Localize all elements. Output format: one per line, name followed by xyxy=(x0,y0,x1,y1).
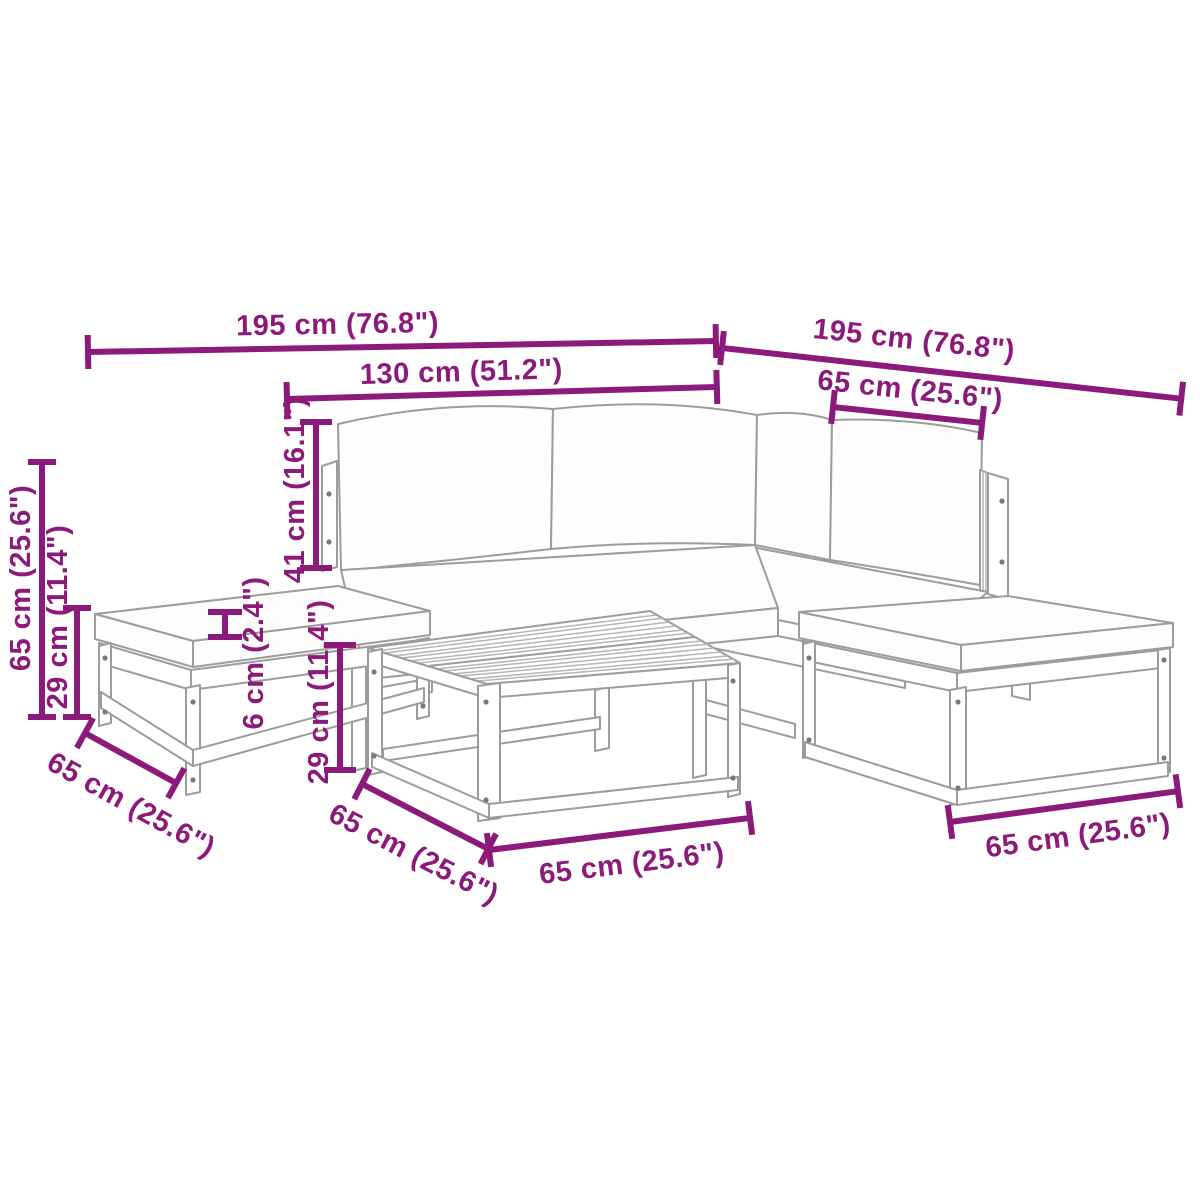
back-cushion-4 xyxy=(830,420,982,585)
dimension-diagram: 195 cm (76.8") 130 cm (51.2") 195 cm (76… xyxy=(0,0,1200,1200)
sofa-back-post xyxy=(322,461,337,571)
dimension-line xyxy=(88,341,716,352)
dimension-tick xyxy=(948,805,953,839)
dim-seat-height: 29 cm (11.4") xyxy=(42,525,91,717)
dim-table-width: 65 cm (25.6") xyxy=(487,801,756,897)
dimension-tick xyxy=(487,833,491,867)
dimension-label: 195 cm (76.8") xyxy=(236,307,439,343)
dimension-tick xyxy=(1179,382,1183,416)
dimension-label: 29 cm (11.4") xyxy=(42,525,74,710)
dimension-tick xyxy=(716,370,717,404)
dimension-tick xyxy=(1176,774,1181,808)
sofa-side-panel xyxy=(980,470,1008,600)
dimension-tick xyxy=(720,331,724,365)
right-footstool xyxy=(799,596,1173,805)
dimension-label: 130 cm (51.2") xyxy=(359,353,563,391)
dimension-label: 65 cm (25.6") xyxy=(323,798,503,912)
dimension-label: 6 cm (2.4") xyxy=(238,576,270,729)
dimension-label: 41 cm (16.1") xyxy=(279,397,311,583)
back-cushion-1 xyxy=(338,406,553,571)
dimension-line xyxy=(287,387,717,399)
back-cushion-2 xyxy=(551,404,757,549)
dimension-diagram-page: 195 cm (76.8") 130 cm (51.2") 195 cm (76… xyxy=(0,0,1200,1200)
dimension-label: 29 cm (11.4") xyxy=(303,600,335,785)
dimension-tick xyxy=(716,324,717,358)
dimension-tick xyxy=(88,335,89,369)
dimension-tick xyxy=(748,801,752,835)
dimension-label: 65 cm (25.6") xyxy=(5,485,37,671)
dimension-label: 65 cm (25.6") xyxy=(537,836,726,890)
back-cushion-3 xyxy=(755,413,832,560)
